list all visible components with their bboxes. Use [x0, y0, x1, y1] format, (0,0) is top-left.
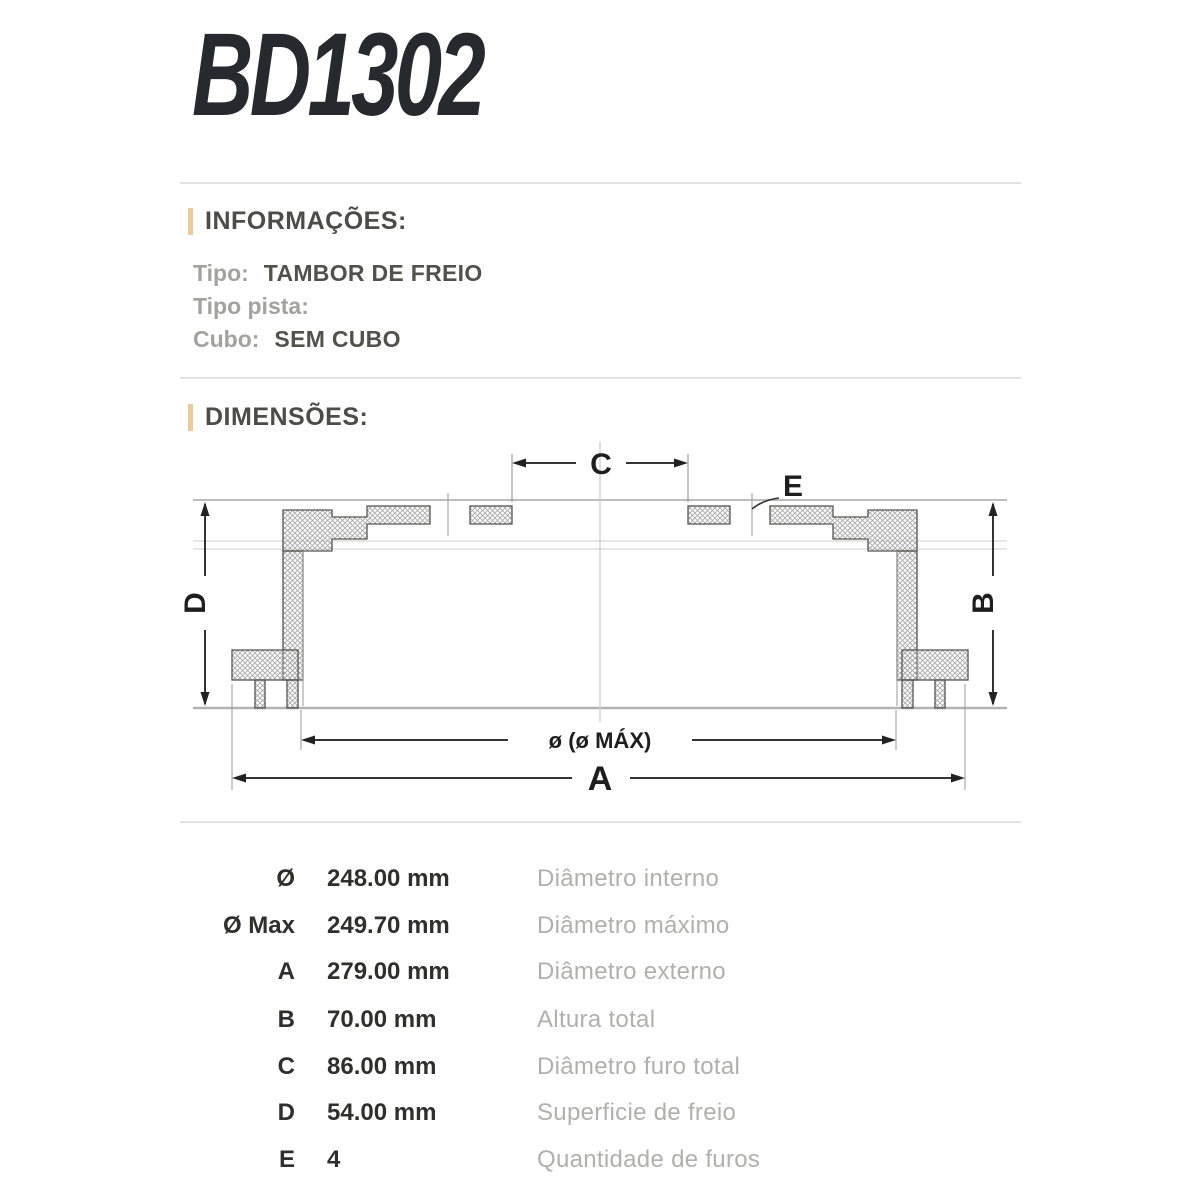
right-flange: [770, 506, 917, 551]
dim-label-b: B: [967, 592, 1000, 614]
separator-middle: [180, 377, 1021, 379]
info-row-tipo-pista: Tipo pista:: [193, 293, 324, 320]
spec-value: 86.00 mm: [327, 1043, 436, 1090]
right-foot-leg: [935, 680, 945, 708]
info-value: TAMBOR DE FREIO: [264, 260, 483, 286]
table-row: Ø Max 249.70 mm Diâmetro máximo: [0, 902, 1020, 949]
part-number-title: BD1302: [192, 16, 482, 134]
spec-description: Diâmetro externo: [537, 948, 726, 995]
dim-label-diameter: ø (ø MÁX): [549, 728, 652, 753]
accent-bar: [188, 404, 193, 431]
brake-drum-diagram: C E D B ø (ø MÁX): [180, 438, 1020, 830]
product-spec-sheet: BD1302 INFORMAÇÕES: Tipo:TAMBOR DE FREIO…: [0, 0, 1200, 1200]
left-wall-leg: [287, 680, 298, 708]
left-foot-leg: [255, 680, 265, 708]
dim-label-d: D: [180, 592, 212, 614]
spec-symbol: D: [150, 1089, 295, 1136]
table-row: A 279.00 mm Diâmetro externo: [0, 948, 1020, 995]
arrowhead: [882, 736, 896, 745]
right-plate-segment: [688, 506, 730, 524]
info-section-heading: INFORMAÇÕES:: [188, 207, 407, 236]
info-row-cubo: Cubo:SEM CUBO: [193, 326, 401, 353]
arrowhead: [201, 692, 210, 706]
info-value: SEM CUBO: [274, 326, 400, 352]
arrowhead: [232, 774, 246, 783]
spec-value: 4: [327, 1136, 340, 1183]
arrowhead: [989, 502, 998, 516]
arrowhead: [989, 692, 998, 706]
table-row: D 54.00 mm Superficie de freio: [0, 1089, 1020, 1136]
spec-description: Quantidade de furos: [537, 1136, 760, 1183]
arrowhead: [674, 459, 688, 468]
separator-bottom: [180, 821, 1021, 823]
spec-value: 54.00 mm: [327, 1089, 436, 1136]
dim-label-a: A: [588, 760, 613, 798]
arrowhead: [951, 774, 965, 783]
spec-symbol: A: [150, 948, 295, 995]
accent-bar: [188, 208, 193, 235]
spec-value: 248.00 mm: [327, 855, 450, 902]
arrowhead: [512, 459, 526, 468]
table-row: B 70.00 mm Altura total: [0, 996, 1020, 1043]
right-foot-flange: [902, 650, 968, 680]
left-foot-flange: [232, 650, 298, 680]
spec-symbol: C: [150, 1043, 295, 1090]
spec-symbol: Ø Max: [150, 902, 295, 949]
arrowhead: [301, 736, 315, 745]
brake-drum-cross-section: C E D B ø (ø MÁX): [180, 438, 1020, 830]
spec-description: Diâmetro máximo: [537, 902, 730, 949]
table-row: C 86.00 mm Diâmetro furo total: [0, 1043, 1020, 1090]
spec-value: 70.00 mm: [327, 996, 436, 1043]
info-heading-text: INFORMAÇÕES:: [205, 207, 407, 236]
info-label: Tipo:: [193, 260, 249, 286]
arrowhead: [201, 502, 210, 516]
spec-description: Altura total: [537, 996, 655, 1043]
spec-description: Diâmetro interno: [537, 855, 719, 902]
spec-value: 249.70 mm: [327, 902, 450, 949]
spec-symbol: B: [150, 996, 295, 1043]
dim-label-c: C: [590, 448, 612, 481]
spec-description: Superficie de freio: [537, 1089, 736, 1136]
left-plate-segment: [470, 506, 512, 524]
spec-description: Diâmetro furo total: [537, 1043, 740, 1090]
info-row-tipo: Tipo:TAMBOR DE FREIO: [193, 260, 483, 287]
right-wall-leg: [902, 680, 913, 708]
info-label: Tipo pista:: [193, 293, 309, 319]
table-row: E 4 Quantidade de furos: [0, 1136, 1020, 1183]
spec-symbol: E: [150, 1136, 295, 1183]
table-row: Ø 248.00 mm Diâmetro interno: [0, 855, 1020, 902]
dimensions-heading-text: DIMENSÕES:: [205, 403, 368, 432]
info-label: Cubo:: [193, 326, 259, 352]
dim-label-e: E: [783, 470, 803, 503]
dimensions-section-heading: DIMENSÕES:: [188, 403, 368, 432]
left-flange: [283, 506, 430, 551]
separator-top: [180, 182, 1021, 184]
spec-symbol: Ø: [150, 855, 295, 902]
spec-value: 279.00 mm: [327, 948, 450, 995]
